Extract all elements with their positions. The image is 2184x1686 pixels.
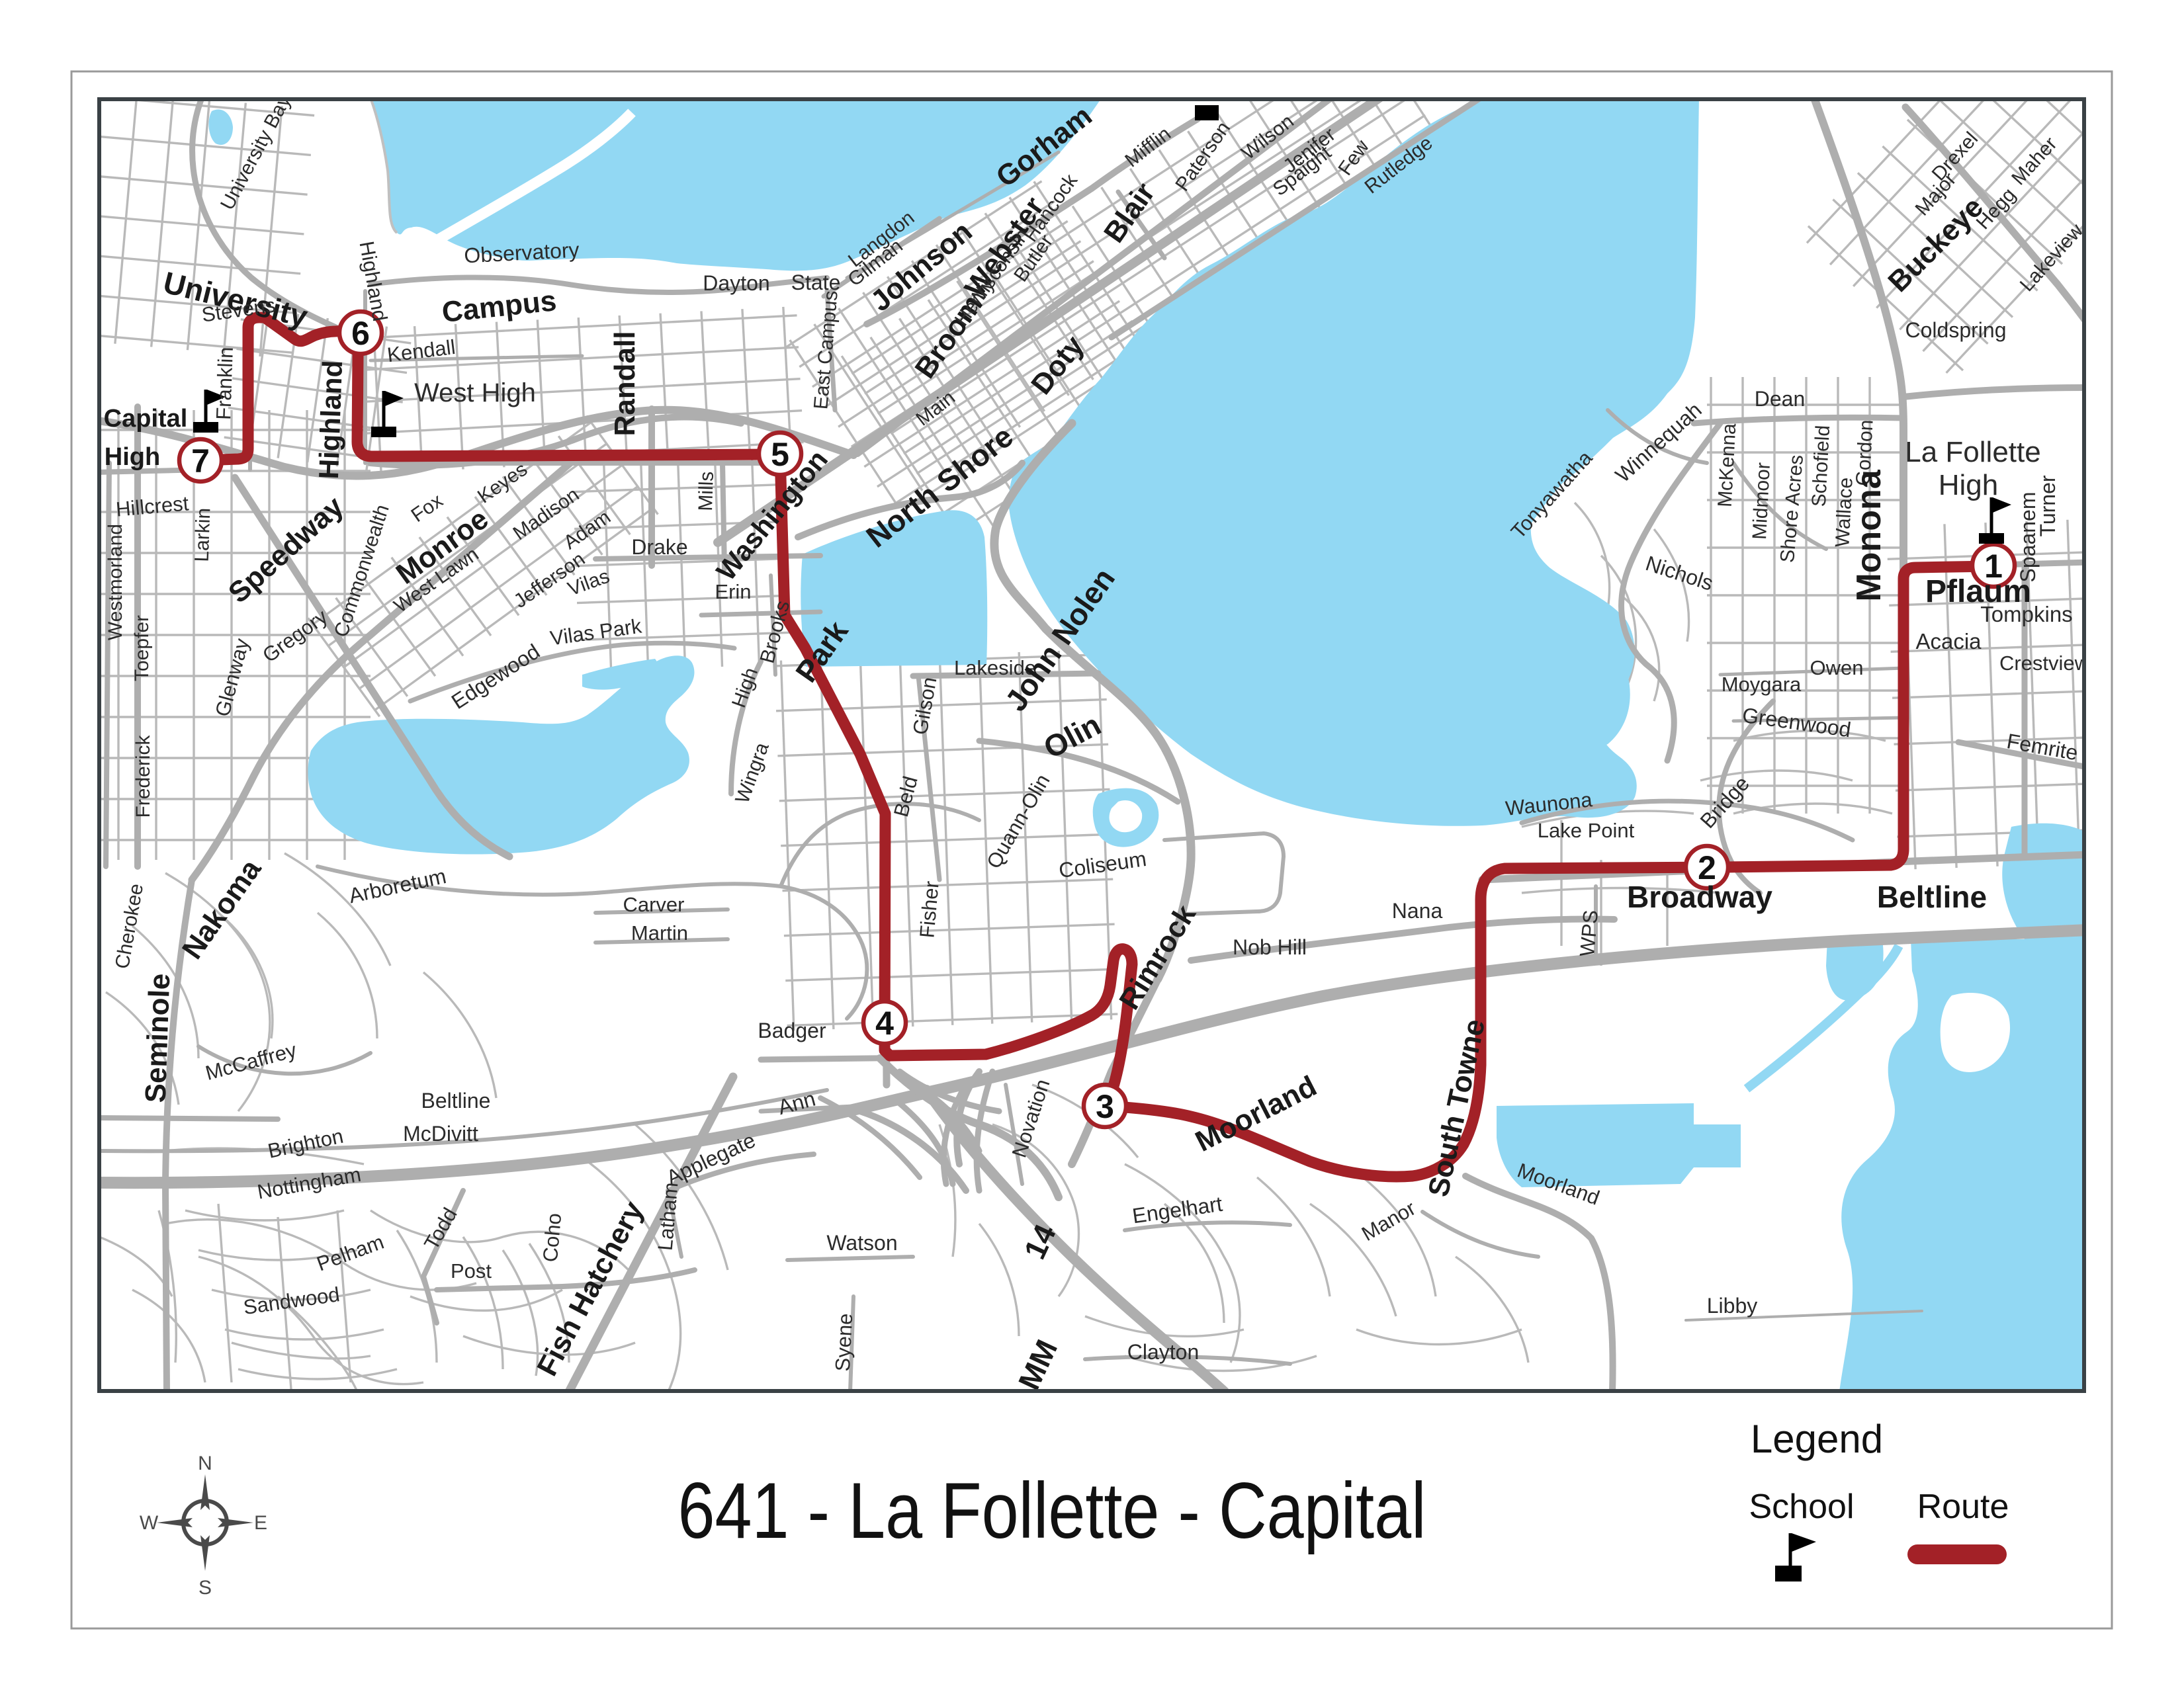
svg-text:School: School	[1749, 1488, 1855, 1526]
svg-text:Coho: Coho	[539, 1212, 566, 1263]
svg-text:McKenna: McKenna	[1714, 423, 1741, 508]
svg-text:West High: West High	[414, 378, 536, 407]
svg-text:Frederick: Frederick	[132, 734, 154, 818]
svg-text:La Follette: La Follette	[1905, 436, 2040, 468]
svg-text:5: 5	[771, 436, 789, 473]
svg-text:Acacia: Acacia	[1915, 629, 1982, 653]
svg-text:Martin: Martin	[631, 921, 688, 945]
svg-text:Badger: Badger	[758, 1019, 826, 1042]
svg-text:Legend: Legend	[1751, 1417, 1883, 1461]
svg-text:Carver: Carver	[623, 893, 684, 916]
svg-text:Post: Post	[451, 1259, 492, 1283]
svg-text:Route: Route	[1917, 1488, 2009, 1526]
svg-text:4: 4	[875, 1005, 894, 1042]
svg-text:S: S	[198, 1577, 212, 1599]
svg-text:Watson: Watson	[826, 1231, 897, 1255]
svg-text:Fisher: Fisher	[915, 880, 943, 939]
svg-text:Drake: Drake	[631, 535, 687, 559]
svg-text:McDivitt: McDivitt	[403, 1122, 478, 1146]
svg-text:Dean: Dean	[1755, 387, 1806, 411]
svg-text:Highland: Highland	[313, 360, 348, 480]
svg-text:Nana: Nana	[1392, 899, 1443, 923]
svg-text:6: 6	[351, 315, 370, 352]
svg-text:7: 7	[191, 443, 210, 480]
svg-text:Randall: Randall	[609, 331, 641, 437]
svg-text:Nob Hill: Nob Hill	[1233, 935, 1307, 959]
svg-text:Midmoor: Midmoor	[1749, 462, 1774, 540]
svg-text:Beltline: Beltline	[421, 1089, 491, 1113]
svg-text:Tompkins: Tompkins	[1980, 602, 2072, 626]
svg-text:Schofield: Schofield	[1808, 425, 1834, 507]
svg-text:Clayton: Clayton	[1127, 1340, 1200, 1364]
svg-text:N: N	[198, 1453, 212, 1474]
svg-text:Dayton: Dayton	[703, 271, 769, 295]
svg-text:Capital: Capital	[104, 405, 188, 433]
svg-text:State: State	[791, 271, 841, 294]
svg-text:Beltline: Beltline	[1877, 880, 1987, 914]
svg-text:High: High	[105, 443, 160, 471]
svg-text:Mills: Mills	[695, 471, 718, 511]
svg-text:Broadway: Broadway	[1627, 880, 1772, 914]
svg-text:Syene: Syene	[831, 1313, 857, 1372]
svg-text:Seminole: Seminole	[140, 973, 177, 1103]
svg-text:Lake Point: Lake Point	[1538, 819, 1635, 842]
svg-text:641 - La Follette - Capital: 641 - La Follette - Capital	[678, 1466, 1426, 1555]
svg-text:Moygara: Moygara	[1722, 673, 1802, 696]
svg-text:Turner: Turner	[2036, 475, 2060, 536]
svg-text:WPS: WPS	[1575, 909, 1602, 957]
svg-text:Franklin: Franklin	[212, 347, 238, 420]
svg-text:Libby: Libby	[1707, 1294, 1758, 1318]
svg-text:Owen: Owen	[1810, 656, 1864, 679]
svg-text:3: 3	[1096, 1088, 1114, 1125]
svg-text:Westmorland: Westmorland	[105, 524, 126, 640]
svg-text:Monona: Monona	[1850, 469, 1888, 601]
svg-text:Toepfer: Toepfer	[131, 615, 153, 681]
svg-text:W: W	[140, 1512, 159, 1534]
svg-text:Coldspring: Coldspring	[1905, 318, 2007, 342]
svg-text:E: E	[254, 1512, 267, 1534]
svg-text:Crestview: Crestview	[1999, 652, 2090, 675]
svg-text:Larkin: Larkin	[191, 507, 215, 562]
svg-text:High: High	[1939, 469, 1999, 501]
